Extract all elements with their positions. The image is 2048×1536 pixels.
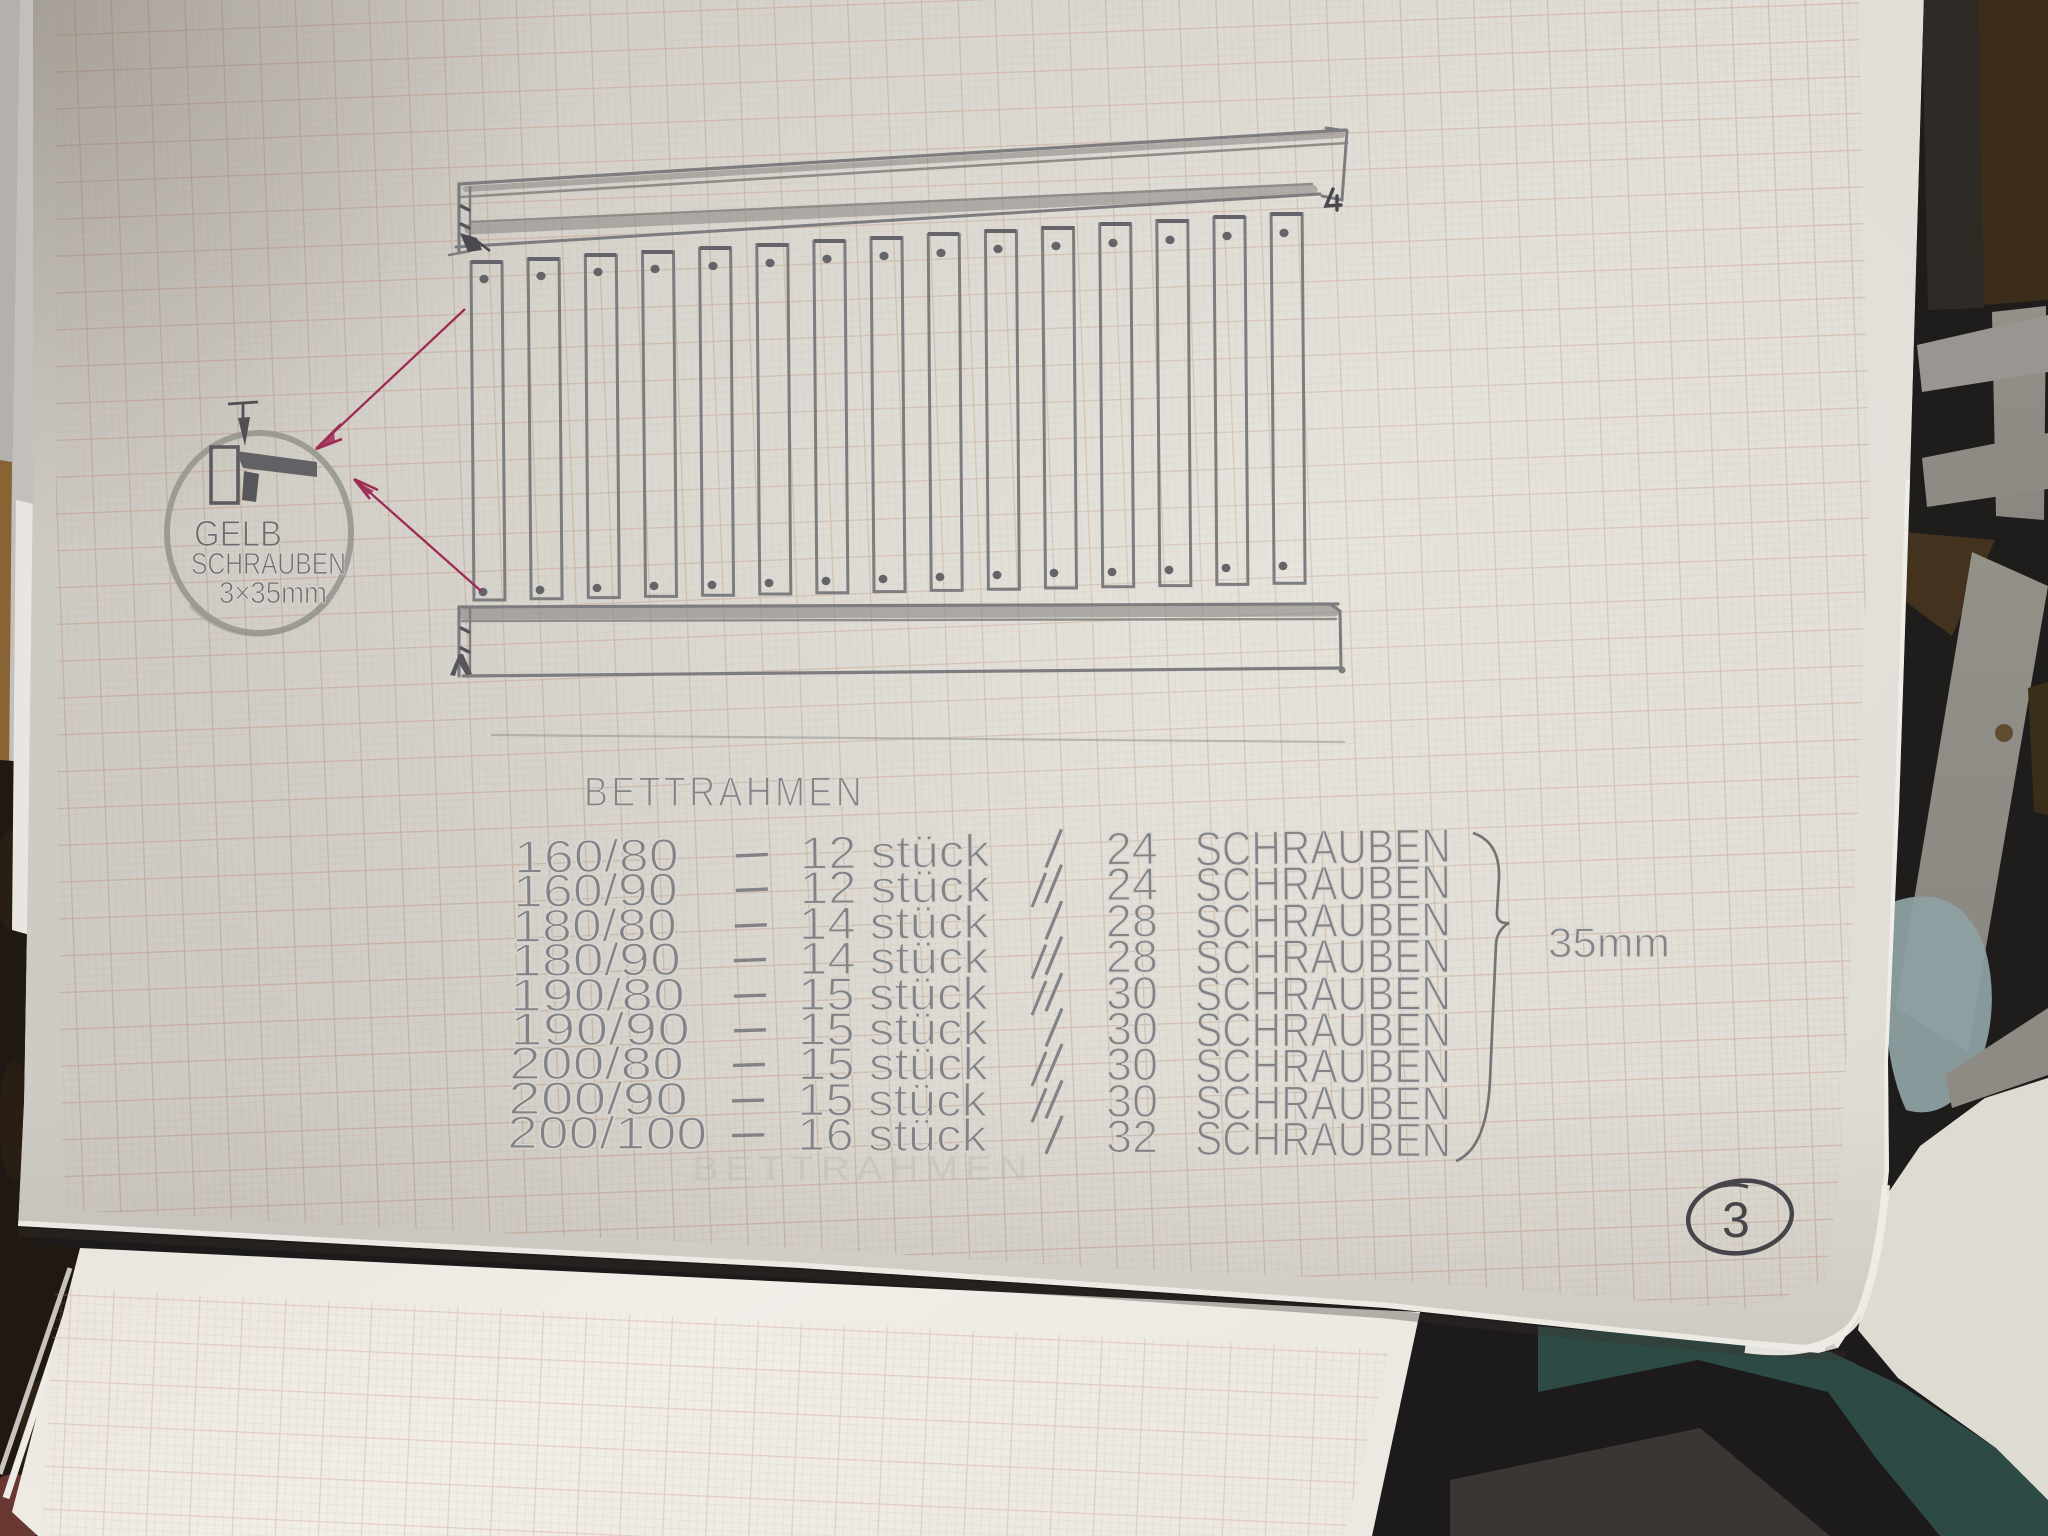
- svg-text:BETTRAHMEN: BETTRAHMEN: [584, 768, 865, 815]
- svg-text:BETTRAHMEN: BETTRAHMEN: [692, 1150, 1034, 1188]
- svg-text:32: 32: [1106, 1110, 1158, 1162]
- svg-text:SCHRAUBEN: SCHRAUBEN: [1195, 1113, 1451, 1168]
- svg-text:3×35mm: 3×35mm: [219, 575, 327, 610]
- svg-text:35mm: 35mm: [1548, 919, 1670, 966]
- svg-text:200/100: 200/100: [507, 1106, 707, 1159]
- svg-text:3: 3: [1722, 1192, 1750, 1248]
